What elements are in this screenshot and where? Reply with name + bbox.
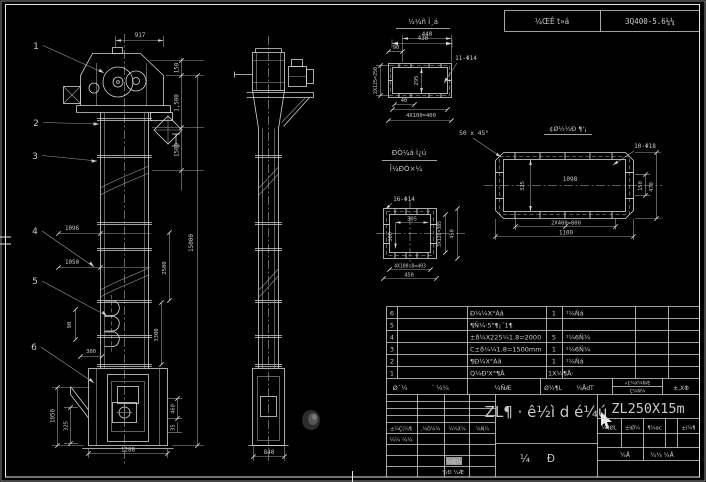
tb-stage-2: ±ìØ¼ — [625, 425, 640, 432]
svg-text:1: 1 — [552, 310, 556, 318]
discharge-chute — [151, 113, 183, 147]
dim-chain-right: 150 1,500 1500 15000 2500 3300 — [150, 58, 204, 448]
svg-text:325: 325 — [64, 421, 70, 431]
detail-b-title: ¢Ø½¼Ð ¶'¡ — [549, 125, 586, 133]
svg-text:150: 150 — [175, 62, 181, 73]
tb-label-2: ,¼Ò¼¼ — [421, 426, 441, 433]
svg-text:460: 460 — [171, 404, 177, 414]
smudge-artifact — [302, 410, 320, 430]
detail-flange-square: ÐÒ¼á Ì¿ú Î¼ÐÓ×¼ 16-Φ14 305 300 3X128=385 — [376, 148, 466, 281]
svg-text:¹¼Ñá: ¹¼Ñá — [566, 309, 584, 318]
bom-row-name: Q¼Ð'X°¶Å — [470, 369, 505, 378]
bom-row-no: 6 — [390, 310, 394, 318]
bom-row-no: 3 — [390, 346, 394, 354]
bom-row-name: ±ð¼X225¼1.8=2000 — [470, 334, 541, 342]
svg-text:1,500: 1,500 — [175, 94, 181, 112]
side-view: 840 — [235, 36, 314, 464]
tb-check-label: ¼Ð ¼Æ — [442, 470, 464, 476]
chamfer-note: 50 x 45° — [459, 129, 489, 137]
svg-text:1500: 1500 — [175, 143, 181, 157]
svg-text:150: 150 — [638, 181, 644, 191]
callout-5: 5 — [32, 277, 38, 287]
svg-text:295: 295 — [414, 76, 420, 86]
svg-text:40: 40 — [401, 98, 408, 104]
svg-text:470: 470 — [649, 182, 655, 192]
svg-text:1288: 1288 — [121, 448, 135, 454]
detail-c-title-2: Î¼ÐÓ×¼ — [390, 164, 423, 173]
svg-text:1: 1 — [552, 358, 556, 366]
tb-stage-4: ±ì¼¶ — [681, 425, 695, 432]
svg-text:15000: 15000 — [188, 234, 195, 252]
stamp-note: ½¼ñ Ï¸á — [408, 17, 438, 26]
tb-highlight-text: ¼Æ¼ — [447, 460, 462, 466]
model-designation: ZL250X15m — [611, 401, 684, 417]
stamp-field-label: ¼ŒÊ t»á — [535, 17, 570, 26]
svg-text:90: 90 — [393, 45, 400, 51]
svg-text:2X125=250: 2X125=250 — [373, 67, 379, 94]
svg-text:«£¼X¼ÑÆ: «£¼X¼ÑÆ — [625, 380, 651, 387]
svg-text:2X400=800: 2X400=800 — [551, 221, 581, 227]
svg-text:1100: 1100 — [559, 231, 573, 237]
tb-sheet-1: ¼Å — [620, 452, 631, 459]
svg-text:450: 450 — [404, 273, 414, 279]
callout-3: 3 — [32, 152, 38, 162]
drawing-title: ZL¶ · ê½ì d é¼ú — [485, 403, 608, 421]
bom-header: Ø´¼ ´ ¼¼ ¼ÑÆ Ø¼¶L ¼ÅdT «£¼X¼ÑÆ Ç¼Ñ¼ ±,XΦ — [393, 380, 689, 395]
callout-2: 2 — [33, 119, 39, 129]
bom-row-no: 4 — [390, 334, 394, 342]
callout-1: 1 — [33, 42, 39, 52]
buckets — [105, 295, 120, 352]
svg-text:¹¼Ñá: ¹¼Ñá — [566, 357, 584, 366]
svg-text:917: 917 — [135, 32, 146, 39]
bom-row-name: ¶Ñ¼·5"¶¡´1¶ — [470, 321, 513, 330]
tb-label-1: ±¼Ç(¼¶ — [390, 427, 412, 433]
svg-text:300: 300 — [86, 349, 96, 355]
bom-row-name: ¶Ð¼X°Àâ — [470, 357, 502, 366]
callout-6: 6 — [31, 343, 37, 353]
svg-text:Ç¼Ñ¼: Ç¼Ñ¼ — [630, 388, 646, 395]
detail-b-inner-dim: 1098 — [563, 176, 578, 183]
tb-label-4: ¼Ñ¼ — [476, 426, 489, 433]
tb-design-label: ¼¼ ¼¼ — [389, 438, 413, 444]
bom-row-name: Ð¼¼X°Àâ — [470, 309, 504, 318]
svg-text:1: 1 — [552, 346, 556, 354]
dim-detail-a: 440 90 2X125=250 295 40 4X100=400 — [373, 32, 454, 123]
detail-c-holes: 16-Φ14 — [393, 196, 415, 203]
dim-side-base: 840 — [251, 447, 286, 462]
top-title-stamp: ¼ŒÊ t»á 3Q400-5.6¼¼ ½¼ñ Ï¸á 430 — [392, 11, 700, 48]
svg-text:325: 325 — [520, 181, 526, 191]
svg-text:1096: 1096 — [65, 226, 79, 232]
svg-text:Ø´¼: Ø´¼ — [393, 384, 408, 392]
front-view: 917 150 1,500 1500 15000 2500 — [31, 32, 204, 464]
svg-text:¼ÑÆ: ¼ÑÆ — [494, 383, 512, 392]
tb-sheet-2: ¼¼ ¼Å — [650, 452, 674, 459]
detail-c-title-1: ÐÒ¼á Ì¿ú — [392, 148, 426, 157]
bom-row-no: 2 — [390, 358, 394, 366]
tb-glyph-2: Ð — [547, 453, 555, 465]
callout-4: 4 — [32, 227, 38, 237]
bom-row-name: C±ð¼¼1.8=1500mm — [470, 346, 542, 354]
svg-text:¼ÅdT: ¼ÅdT — [576, 385, 594, 392]
bom-row-no: 5 — [390, 322, 394, 330]
detail-flange-long: ¢Ø½¼Ð ¶'¡ 10-Φ18 1098 325 150 — [484, 125, 662, 240]
tb-label-3: ¼¼X¼ — [448, 427, 466, 433]
tb-stage-3: ¶¼ac — [647, 426, 662, 432]
tb-stage-1: ¼¶ØL — [601, 425, 616, 432]
bom-row-no: 1 — [390, 370, 394, 378]
svg-text:¹¼6Ñ¼: ¹¼6Ñ¼ — [566, 333, 591, 342]
svg-text:4X100=400: 4X100=400 — [406, 113, 436, 119]
svg-text:35: 35 — [171, 424, 177, 430]
dim-head-width: 917 — [116, 32, 164, 47]
svg-text:1050: 1050 — [51, 409, 57, 423]
svg-text:±,XΦ: ±,XΦ — [673, 385, 689, 392]
title-block: ±¼Ç(¼¶ ,¼Ò¼¼ ¼¼X¼ ¼Ñ¼ ¼¼ ¼¼ ¼Æ¼ ¼Ð ¼Æ ZL… — [387, 395, 700, 478]
dim-boot: 1050 325 1288 460 35 — [51, 385, 183, 458]
tb-glyph-1: ¼ — [520, 453, 530, 465]
svg-text:840: 840 — [264, 450, 275, 456]
detail-b-holes: 10-Φ18 — [634, 143, 656, 150]
svg-text:1050: 1050 — [65, 260, 79, 266]
svg-text:90: 90 — [67, 322, 73, 329]
svg-text:3300: 3300 — [154, 328, 160, 341]
cad-drawing-viewport: ¼ŒÊ t»á 3Q400-5.6¼¼ ½¼ñ Ï¸á 430 — [0, 0, 706, 482]
svg-text:2500: 2500 — [162, 261, 168, 274]
dim-detail-b: 325 150 470 2X400=800 1100 — [493, 150, 661, 240]
dim-sections-left: 1096 1050 90 300 — [56, 226, 150, 359]
detail-flange-small: 440 90 2X125=250 295 40 4X100=400 — [373, 32, 501, 157]
svg-text:¹¼6Ñ¼: ¹¼6Ñ¼ — [566, 345, 591, 354]
svg-text:1X¼¶Å·: 1X¼¶Å· — [548, 369, 574, 378]
svg-text:4X100.8=403: 4X100.8=403 — [394, 264, 426, 270]
boot-section — [71, 369, 174, 449]
svg-text:3X128=385: 3X128=385 — [437, 221, 443, 247]
svg-text:440: 440 — [422, 32, 433, 38]
stamp-drawing-number: 3Q400-5.6¼¼ — [625, 17, 675, 26]
svg-text:5: 5 — [552, 334, 556, 342]
detail-a-holes: 11-Φ14 — [455, 55, 477, 62]
svg-text:300: 300 — [388, 232, 394, 242]
svg-text:305: 305 — [407, 217, 417, 223]
drive-assembly — [64, 67, 147, 104]
svg-text:450: 450 — [450, 229, 456, 239]
svg-text:´ ¼¼: ´ ¼¼ — [431, 384, 450, 392]
dim-detail-c: 305 300 3X128=385 450 4X100.8=403 450 — [381, 206, 459, 280]
svg-text:Ø¼¶L: Ø¼¶L — [544, 385, 562, 392]
